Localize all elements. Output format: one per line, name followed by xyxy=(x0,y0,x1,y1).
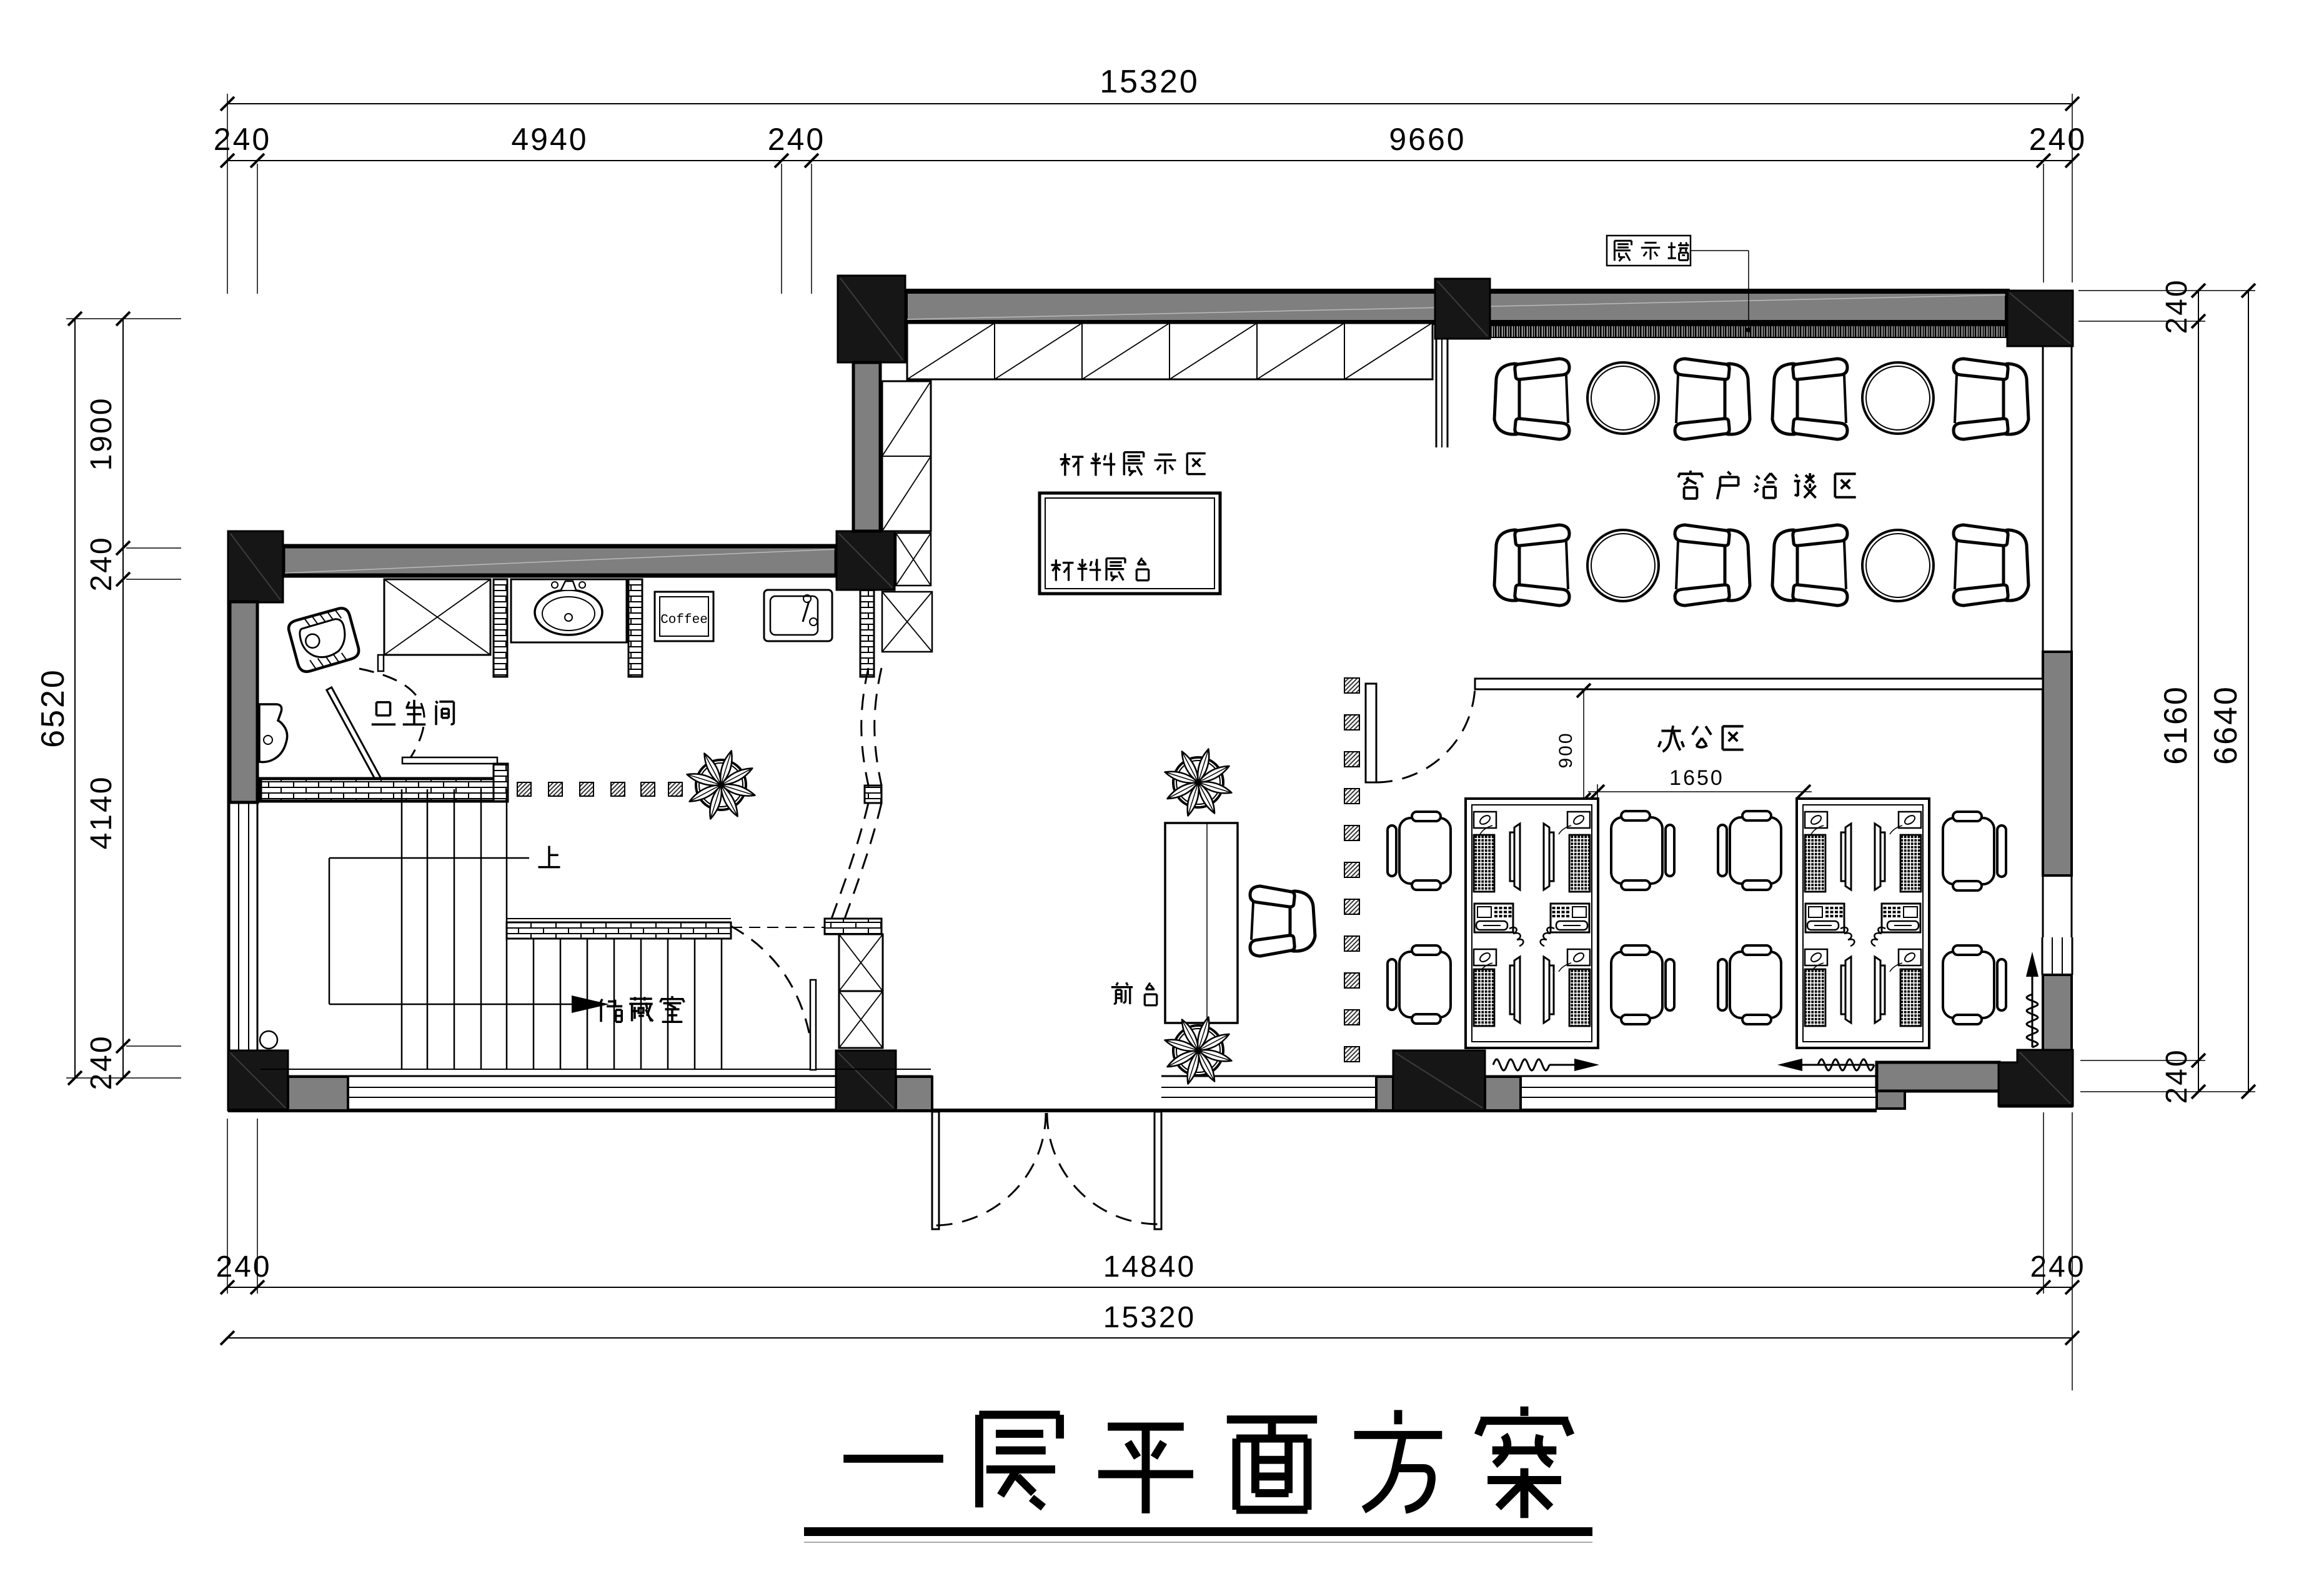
svg-text:6160: 6160 xyxy=(2158,685,2194,765)
svg-text:15320: 15320 xyxy=(1103,1301,1196,1334)
svg-text:240: 240 xyxy=(85,1034,118,1090)
svg-text:240: 240 xyxy=(2030,1250,2085,1284)
svg-text:240: 240 xyxy=(2029,122,2087,157)
svg-text:1900: 1900 xyxy=(85,397,118,471)
svg-text:1650: 1650 xyxy=(1669,766,1724,790)
svg-text:240: 240 xyxy=(85,536,118,591)
svg-text:9660: 9660 xyxy=(1389,122,1466,157)
svg-text:6520: 6520 xyxy=(35,668,71,748)
svg-text:4940: 4940 xyxy=(511,122,588,157)
svg-text:4140: 4140 xyxy=(85,776,118,850)
svg-text:240: 240 xyxy=(214,122,271,157)
svg-text:Coffee: Coffee xyxy=(660,613,708,627)
svg-text:15320: 15320 xyxy=(1100,64,1199,100)
svg-text:900: 900 xyxy=(1556,731,1576,768)
svg-text:240: 240 xyxy=(2160,1048,2193,1104)
svg-text:240: 240 xyxy=(216,1250,271,1284)
svg-text:240: 240 xyxy=(768,122,825,157)
svg-text:240: 240 xyxy=(2160,278,2193,334)
svg-text:14840: 14840 xyxy=(1103,1250,1196,1284)
svg-text:6640: 6640 xyxy=(2208,685,2244,765)
